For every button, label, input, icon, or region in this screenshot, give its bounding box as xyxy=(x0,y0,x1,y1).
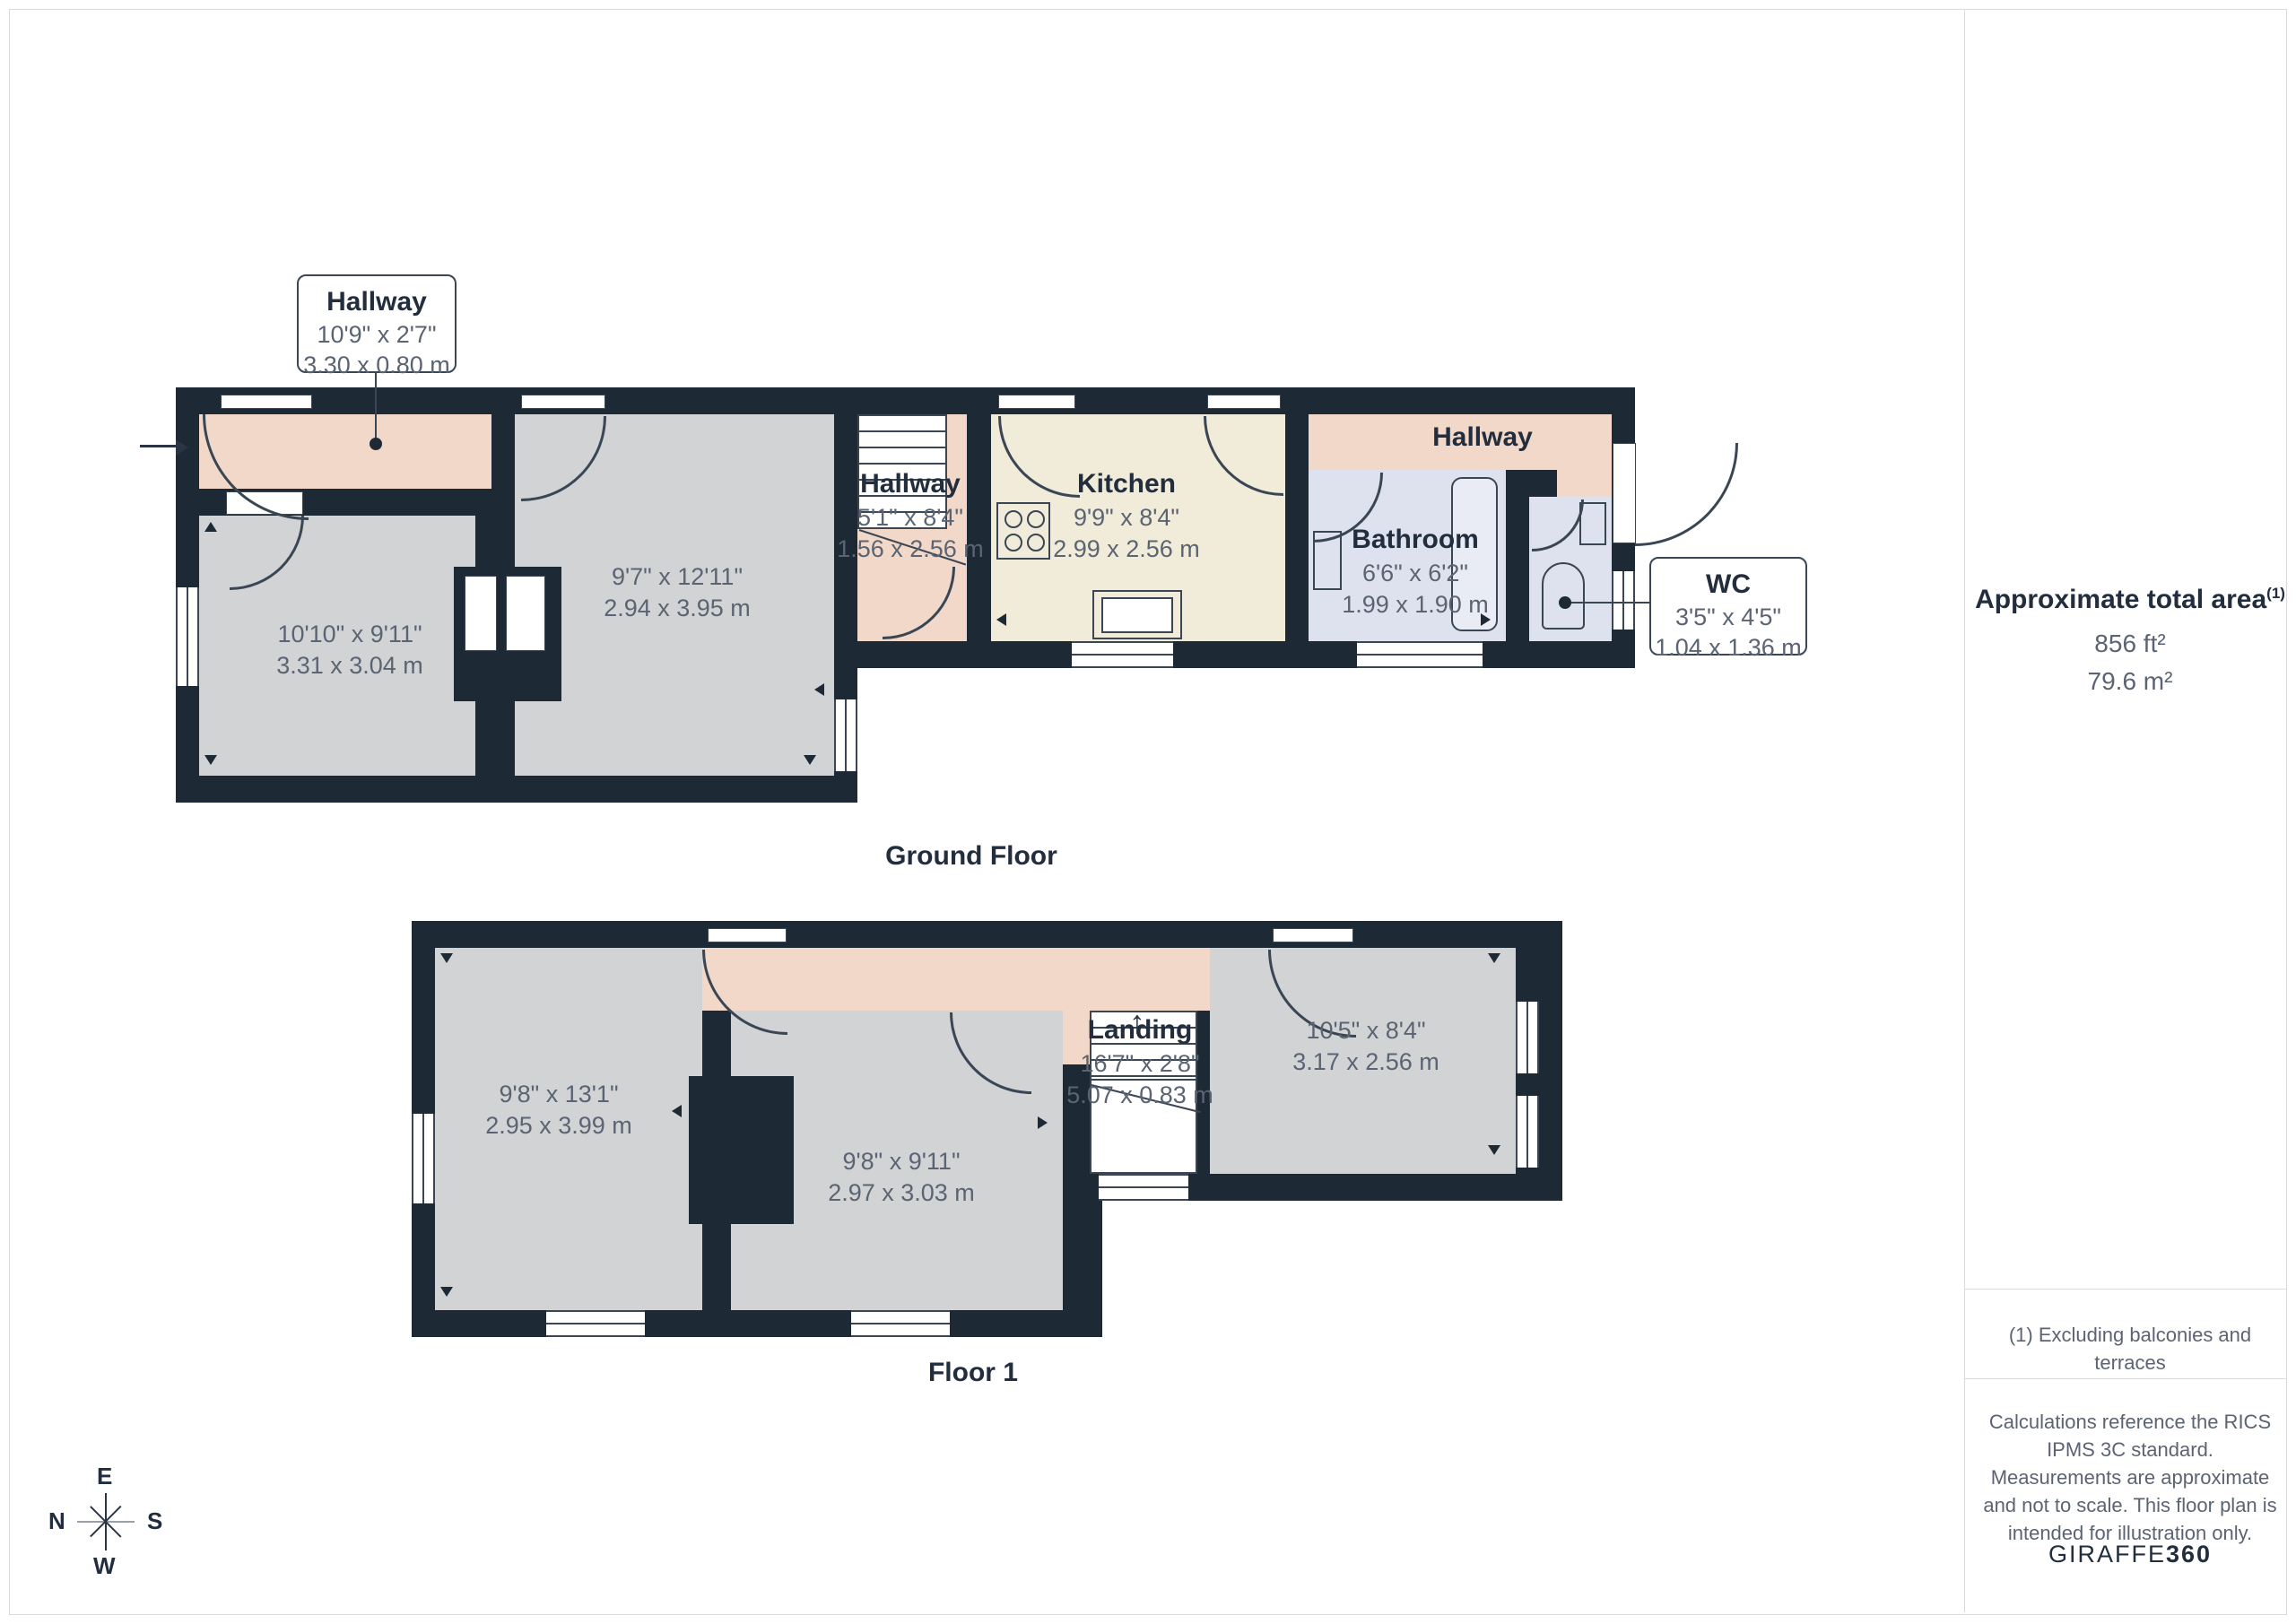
wc-callout-box: WC 3'5" x 4'5" 1.04 x 1.36 m xyxy=(1649,557,1807,656)
floor-1-plan: ↑ 9'8" x 13'1" 2.95 x 3.99 m 9'8" x 9'11… xyxy=(412,921,1562,1337)
hallway-callout-title: Hallway xyxy=(299,285,455,319)
wc-callout-dot xyxy=(1559,596,1571,609)
f1-bed-mid-imperial: 9'8" x 9'11" xyxy=(794,1146,1009,1177)
gf-hallway-right-label: Hallway xyxy=(1393,420,1572,456)
gf-tick-1 xyxy=(204,522,217,532)
f1-tick-5 xyxy=(1488,953,1500,963)
page-border xyxy=(9,9,2287,1615)
f1-landing-title: Landing xyxy=(1050,1012,1230,1048)
wc-callout-metric: 1.04 x 1.36 m xyxy=(1651,632,1805,663)
gf-room-mid-label: 9'7" x 12'11" 2.94 x 3.95 m xyxy=(570,561,785,624)
f1-landing-label: Landing 16'7" x 2'8" 5.07 x 0.83 m xyxy=(1050,1012,1230,1111)
gf-window-mid-right-wall xyxy=(834,699,857,771)
gf-bathroom-imperial: 6'6" x 6'2" xyxy=(1326,558,1505,589)
floorplan-page: { "colors":{ "wall":"#1e2936","room":"#d… xyxy=(0,0,2296,1624)
gf-kitchen-label: Kitchen 9'9" x 8'4" 2.99 x 2.56 m xyxy=(1037,466,1216,565)
sidebar-section-line-top xyxy=(1965,1289,2286,1290)
brand-logo: GIRAFFE360 xyxy=(1978,1541,2283,1568)
wc-callout-leader xyxy=(1570,602,1649,604)
gf-chimney-alcove-right xyxy=(506,576,545,651)
wc-callout-imperial: 3'5" x 4'5" xyxy=(1651,602,1805,632)
f1-tick-3 xyxy=(672,1105,682,1117)
f1-window-left-wall xyxy=(412,1114,435,1203)
gf-room-left-label: 10'10" x 9'11" 3.31 x 3.04 m xyxy=(242,619,457,682)
area-metric: 79.6 m² xyxy=(1973,667,2287,696)
compass-south: S xyxy=(147,1507,162,1535)
gf-window-left-wall xyxy=(176,587,199,686)
area-summary: Approximate total area(1) 856 ft² 79.6 m… xyxy=(1973,585,2287,696)
ground-floor-caption: Ground Floor xyxy=(837,841,1106,872)
gf-room-mid-imperial: 9'7" x 12'11" xyxy=(570,561,785,593)
hallway-callout-leader xyxy=(375,373,377,439)
gf-hallway-right-title: Hallway xyxy=(1393,420,1572,456)
gf-window-bathroom-bottom xyxy=(1357,641,1483,668)
f1-window-right-lower xyxy=(1516,1096,1539,1168)
gf-room-mid-metric: 2.94 x 3.95 m xyxy=(570,593,785,624)
compass-rose: E N S W xyxy=(41,1466,176,1583)
sidebar-divider xyxy=(1964,10,1965,1612)
f1-window-bottom-left xyxy=(546,1310,645,1337)
gf-stair-hall-metric: 1.56 x 2.56 m xyxy=(821,534,1000,565)
gf-tick-2 xyxy=(204,755,217,765)
gf-room-left-imperial: 10'10" x 9'11" xyxy=(242,619,457,650)
f1-landing-metric: 5.07 x 0.83 m xyxy=(1050,1080,1230,1111)
compass-west: W xyxy=(93,1552,116,1580)
f1-window-stairwell-bottom xyxy=(1099,1174,1188,1201)
f1-bed-left-imperial: 9'8" x 13'1" xyxy=(451,1079,666,1110)
gf-kitchen-door-gap-left xyxy=(998,395,1075,409)
gf-stair-hall-label: Hallway 5'1" x 8'4" 1.56 x 2.56 m xyxy=(821,466,1000,565)
hallway-callout-imperial: 10'9" x 2'7" xyxy=(299,319,455,350)
hallway-callout-dot xyxy=(370,438,382,450)
gf-wc-sink xyxy=(1579,502,1606,545)
gf-exterior-door-gap-right xyxy=(1613,443,1636,543)
gf-kitchen-metric: 2.99 x 2.56 m xyxy=(1037,534,1216,565)
floor-1-caption: Floor 1 xyxy=(839,1358,1108,1388)
gf-tick-3 xyxy=(804,755,816,765)
gf-kitchen-title: Kitchen xyxy=(1037,466,1216,502)
hallway-callout-box: Hallway 10'9" x 2'7" 3.30 x 0.80 m xyxy=(297,274,457,373)
f1-bed-right-imperial: 10'5" x 8'4" xyxy=(1258,1015,1474,1046)
wc-callout-title: WC xyxy=(1651,568,1805,602)
f1-bed-mid-metric: 2.97 x 3.03 m xyxy=(794,1177,1009,1209)
f1-bed-right-label: 10'5" x 8'4" 3.17 x 2.56 m xyxy=(1258,1015,1474,1078)
hallway-callout-metric: 3.30 x 0.80 m xyxy=(299,350,455,380)
gf-entrance-door-leaf xyxy=(221,395,312,409)
f1-bed-right-metric: 3.17 x 2.56 m xyxy=(1258,1046,1474,1078)
gf-stair-hall-title: Hallway xyxy=(821,466,1000,502)
gf-room-left-metric: 3.31 x 3.04 m xyxy=(242,650,457,682)
ground-floor-plan: 10'10" x 9'11" 3.31 x 3.04 m 9'7" x 12'1… xyxy=(176,387,1635,803)
sidebar-section-line-bottom xyxy=(1965,1378,2286,1379)
entrance-arrow-head xyxy=(176,439,188,456)
f1-bed-right-door-gap xyxy=(1273,928,1353,942)
gf-chimney-alcove-left xyxy=(465,576,497,651)
area-title-superscript: (1) xyxy=(2266,585,2285,602)
f1-bed-mid-label: 9'8" x 9'11" 2.97 x 3.03 m xyxy=(794,1146,1009,1209)
gf-tick-5 xyxy=(996,613,1006,626)
area-imperial: 856 ft² xyxy=(1973,630,2287,658)
gf-stair-hall-imperial: 5'1" x 8'4" xyxy=(821,502,1000,534)
brand-360: 360 xyxy=(2166,1541,2212,1568)
f1-landing-imperial: 16'7" x 2'8" xyxy=(1050,1048,1230,1080)
disclaimer: Calculations reference the RICS IPMS 3C … xyxy=(1980,1408,2280,1547)
f1-bed-left-label: 9'8" x 13'1" 2.95 x 3.99 m xyxy=(451,1079,666,1142)
area-footnote: (1) Excluding balconies and terraces xyxy=(1978,1321,2283,1376)
f1-bed-left-metric: 2.95 x 3.99 m xyxy=(451,1110,666,1142)
gf-window-kitchen-bottom xyxy=(1072,641,1173,668)
gf-kitchen-imperial: 9'9" x 8'4" xyxy=(1037,502,1216,534)
f1-bed-left-door-gap xyxy=(708,928,787,942)
compass-north: N xyxy=(48,1507,65,1535)
area-title-line: Approximate total area(1) xyxy=(1973,585,2287,615)
f1-window-right-upper xyxy=(1516,1002,1539,1073)
entrance-arrow xyxy=(140,445,178,447)
f1-tick-1 xyxy=(440,953,453,963)
f1-tick-4 xyxy=(1038,1116,1048,1129)
gf-kitchen-sink-basin xyxy=(1101,597,1173,633)
f1-tick-6 xyxy=(1488,1145,1500,1155)
area-title: Approximate total area xyxy=(1975,585,2266,614)
gf-kitchen-door-gap-right xyxy=(1207,395,1281,409)
f1-tick-2 xyxy=(440,1287,453,1297)
f1-chimney-breast xyxy=(689,1076,794,1224)
gf-window-wc-right-wall xyxy=(1612,571,1635,630)
brand-giraffe: GIRAFFE xyxy=(2048,1541,2166,1568)
f1-window-bottom-mid xyxy=(851,1310,950,1337)
gf-bathroom-title: Bathroom xyxy=(1326,522,1505,558)
gf-tick-4 xyxy=(814,683,824,696)
gf-bathroom-metric: 1.99 x 1.90 m xyxy=(1326,589,1505,621)
gf-bathroom-label: Bathroom 6'6" x 6'2" 1.99 x 1.90 m xyxy=(1326,522,1505,621)
compass-east: E xyxy=(97,1463,112,1490)
gf-room-mid-door-gap xyxy=(521,395,605,409)
